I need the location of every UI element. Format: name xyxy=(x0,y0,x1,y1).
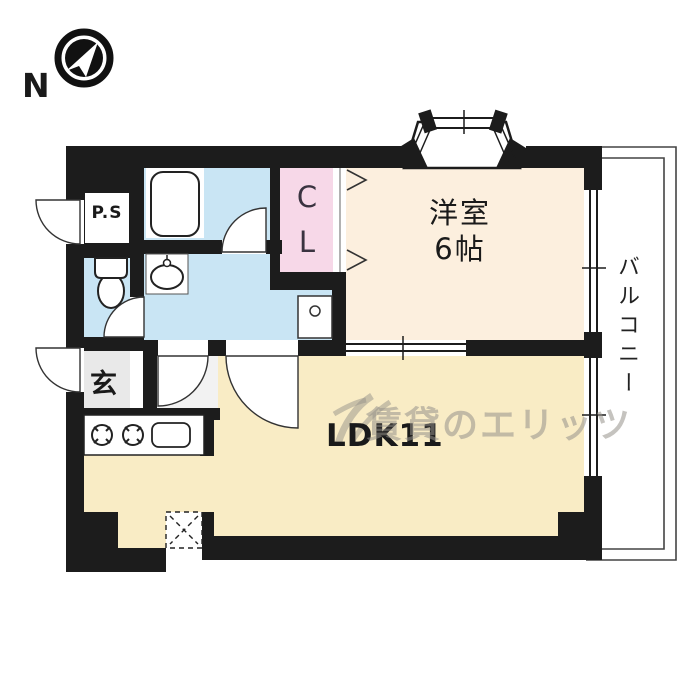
ps-label: P.S xyxy=(84,203,130,223)
bathtub-icon xyxy=(151,172,199,236)
western-room-label: 洋室 6帖 xyxy=(370,195,550,268)
floorplan-drawing xyxy=(0,0,700,700)
north-compass-icon xyxy=(58,32,110,84)
entrance-door-arc xyxy=(36,348,80,392)
north-label: N xyxy=(22,66,50,105)
watermark-text: 賃貸のエリッツ xyxy=(366,396,632,448)
toilet-icon xyxy=(95,258,127,308)
ps-door-arc xyxy=(36,200,80,244)
kitchen-sink-icon xyxy=(152,423,190,447)
bay-window xyxy=(394,109,530,168)
washbasin-icon xyxy=(146,254,188,294)
entrance-step xyxy=(130,351,143,408)
balcony-label: バルコニー xyxy=(610,255,642,400)
ldk-door-opening xyxy=(226,340,298,356)
washing-machine-pan xyxy=(298,296,332,338)
floorplan-image: N P.S C L 洋室 6帖 バルコニー 玄 LDK11 賃貸のエリッツ xyxy=(0,0,700,700)
kitchen-counter xyxy=(84,415,204,455)
pillar-marker xyxy=(166,512,202,548)
closet-label: C L xyxy=(288,175,326,265)
washroom-door-opening xyxy=(158,340,208,356)
entrance-label: 玄 xyxy=(90,362,117,401)
window-western-room xyxy=(582,190,606,332)
